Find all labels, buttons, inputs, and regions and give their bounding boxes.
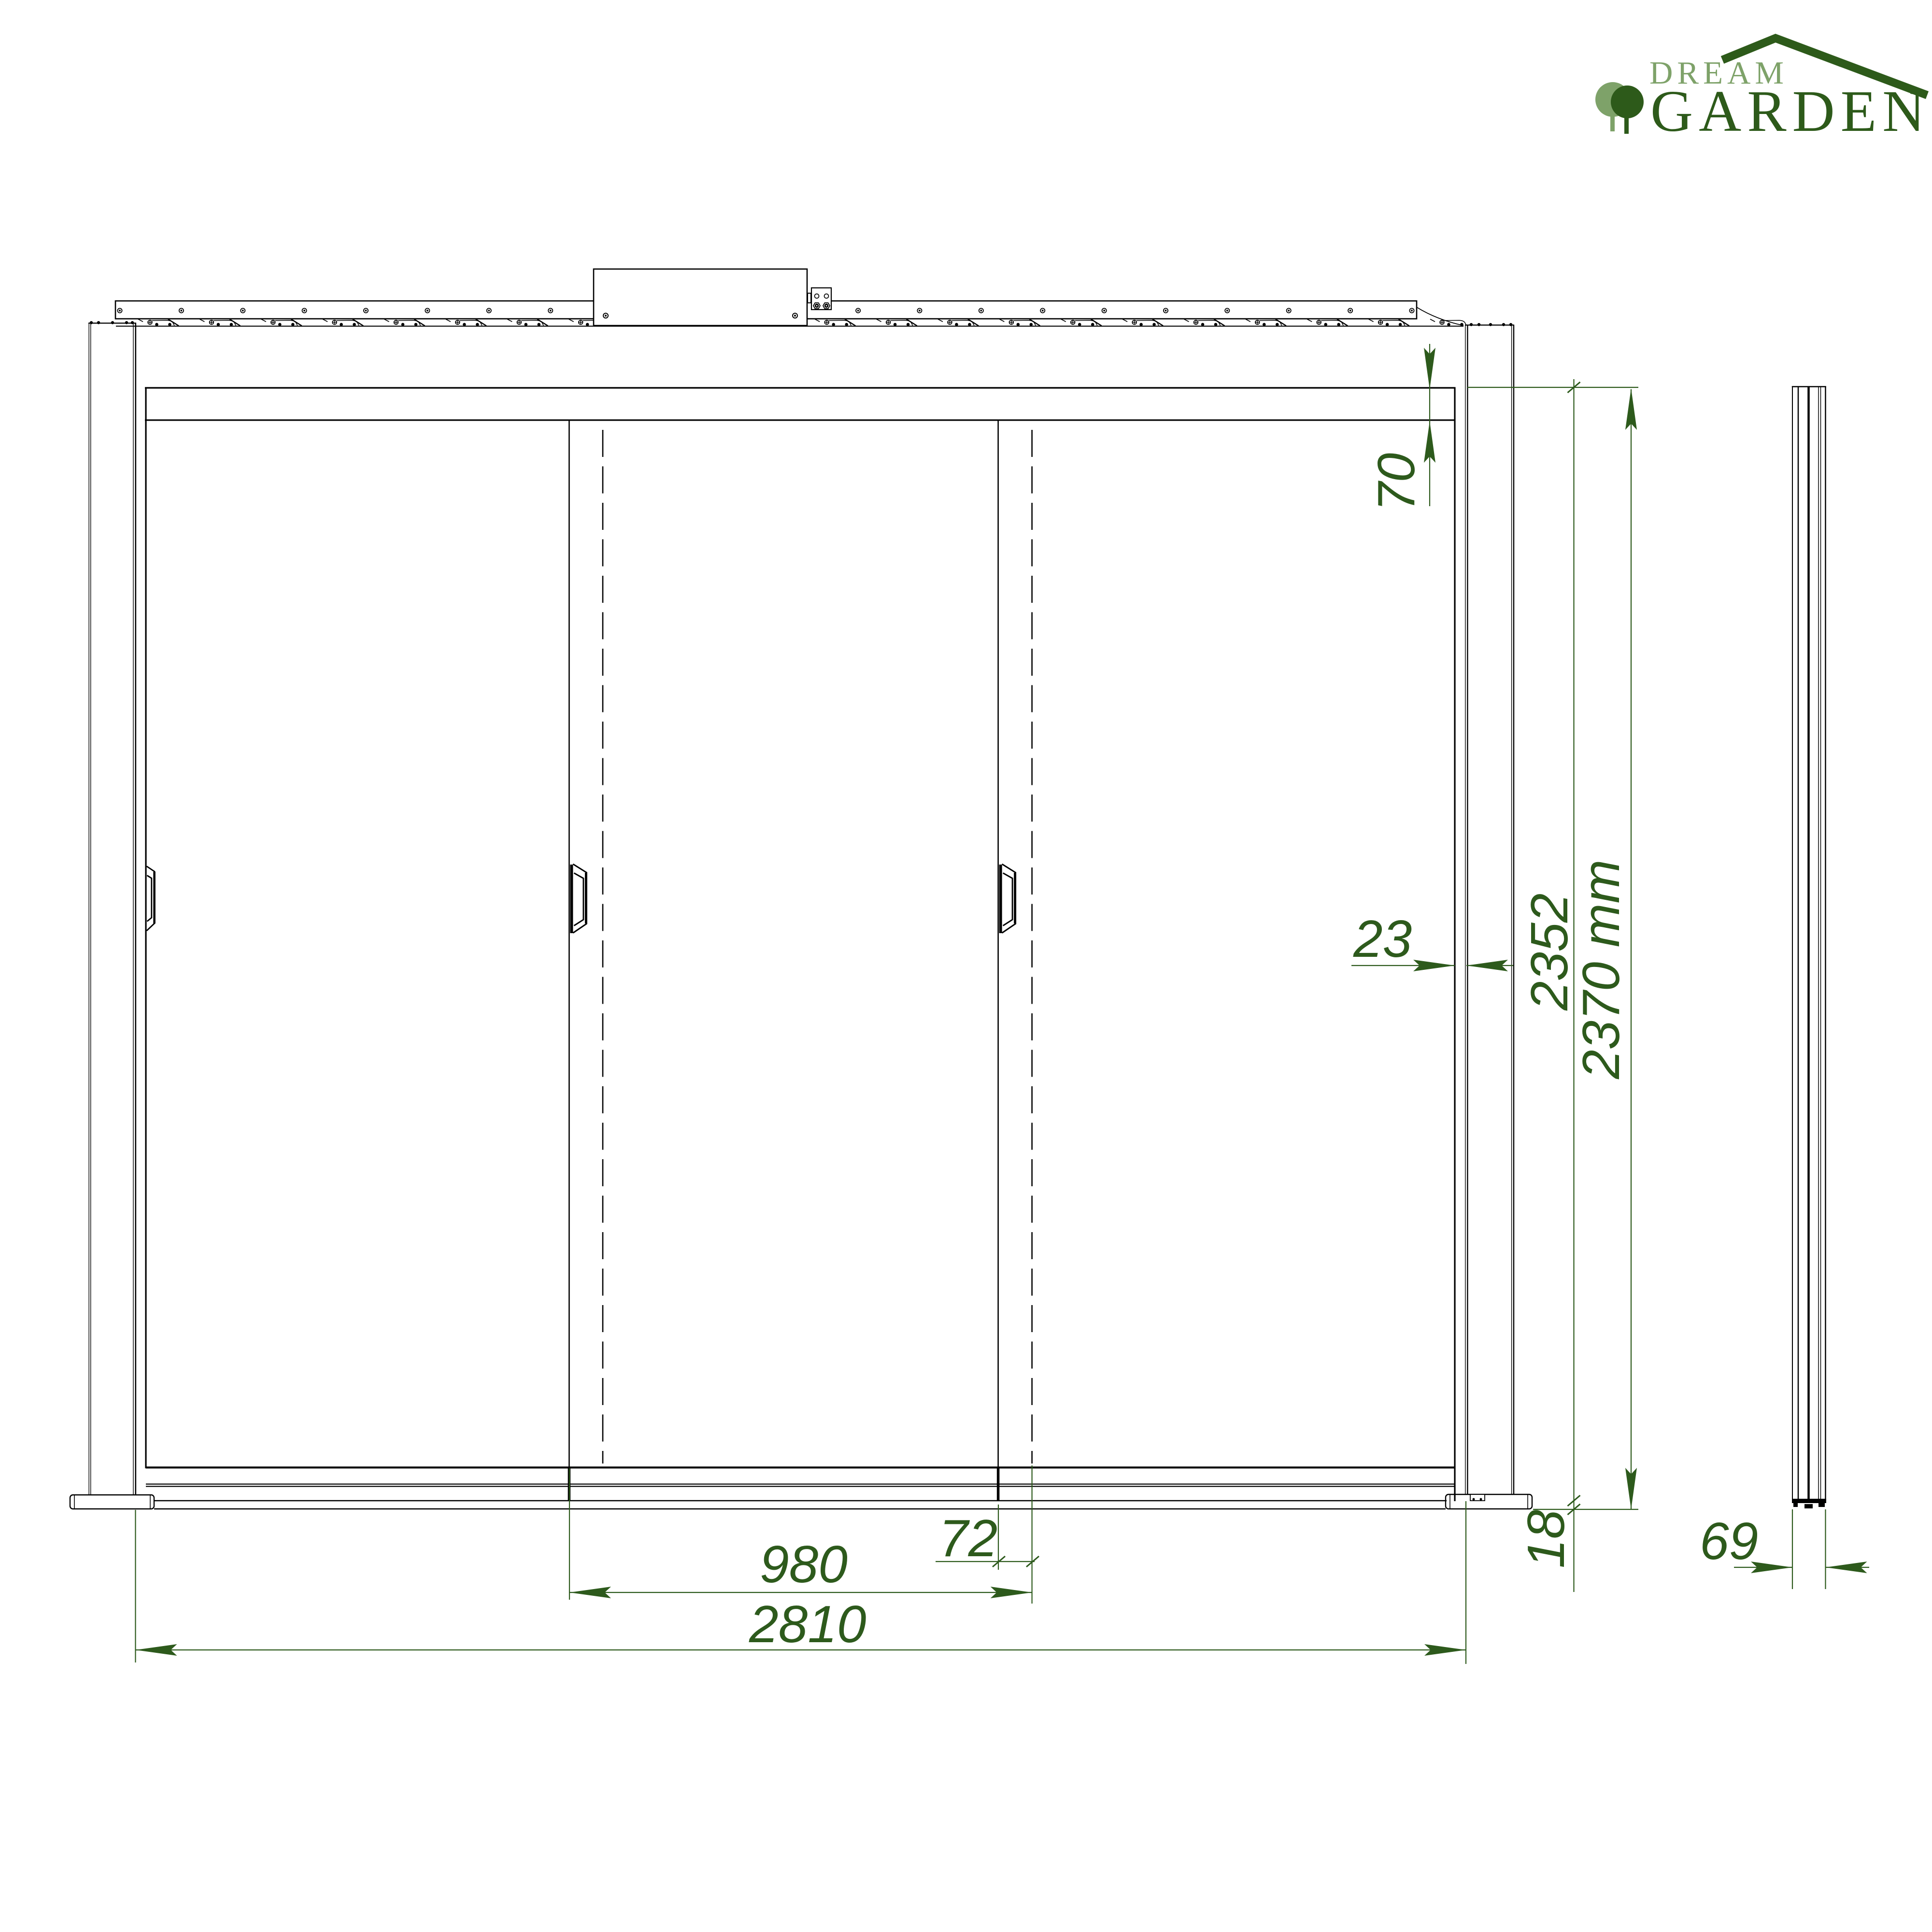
svg-text:2352: 2352 <box>1520 894 1579 1011</box>
svg-text:2810: 2810 <box>749 1595 866 1654</box>
svg-text:980: 980 <box>760 1535 848 1594</box>
svg-text:69: 69 <box>1700 1512 1758 1571</box>
svg-text:72: 72 <box>939 1509 997 1568</box>
svg-text:18: 18 <box>1517 1510 1576 1568</box>
svg-text:70: 70 <box>1367 453 1426 511</box>
svg-text:23: 23 <box>1353 909 1412 968</box>
svg-text:GARDEN: GARDEN <box>1650 79 1931 144</box>
svg-text:2370 mm: 2370 mm <box>1572 860 1631 1080</box>
